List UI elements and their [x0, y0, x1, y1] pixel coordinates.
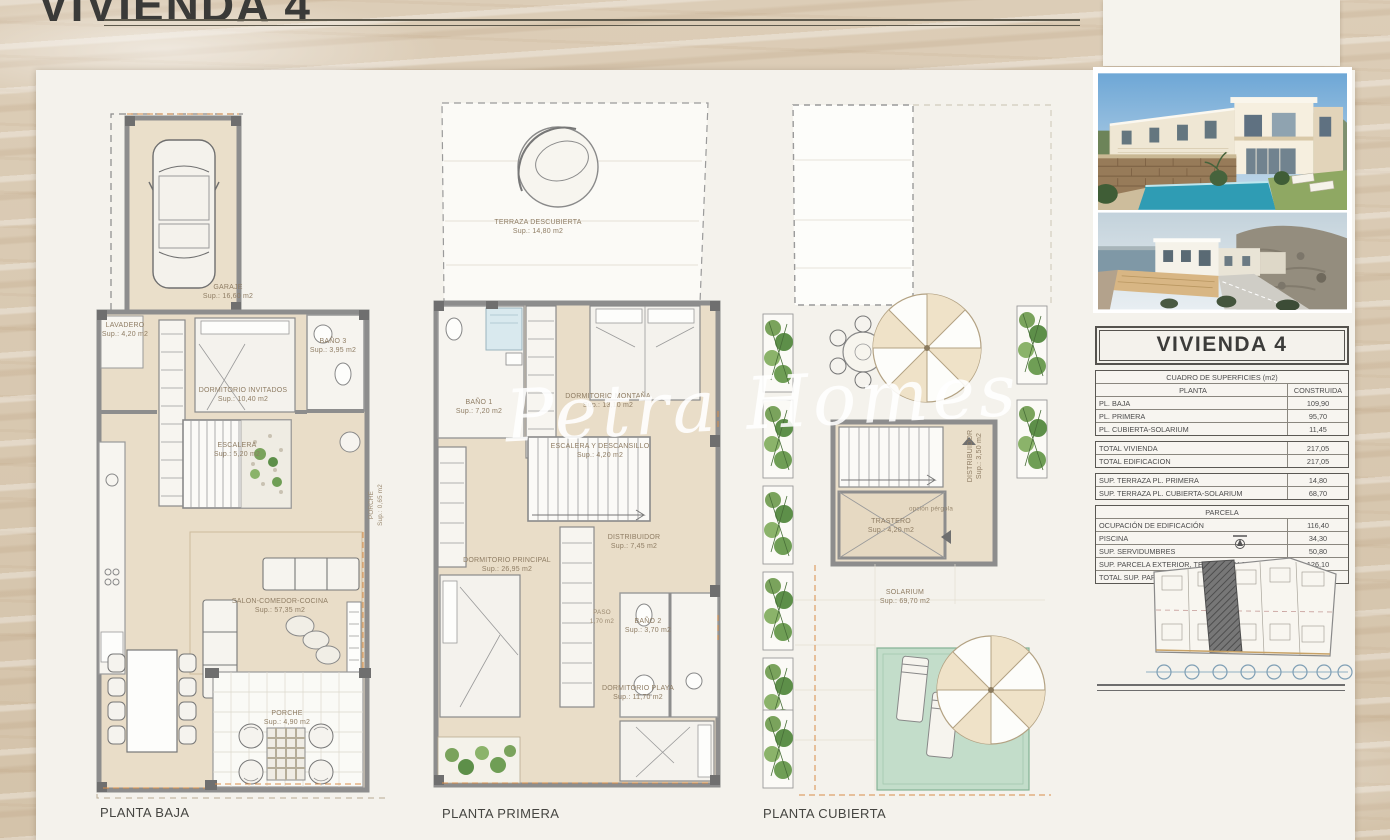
parcela-header: PARCELA	[1096, 506, 1348, 518]
table-row: TOTAL VIVIENDA217,05	[1096, 442, 1348, 454]
table-row: PL. PRIMERA95,70	[1096, 409, 1348, 422]
plants-icon	[438, 737, 520, 783]
plan-planta-cubierta: DISTRIBUIDORSup.: 3,50 m2 TRASTEROSup.: …	[755, 100, 1060, 800]
room-label-solarium: SOLARIUMSup.: 69,70 m2	[880, 588, 930, 606]
page-title: VIVIENDA 4	[38, 0, 312, 32]
room-label-escalera: ESCALERASup.: 5,20 m2	[214, 441, 260, 459]
table-header: CUADRO DE SUPERFICIES (m2)	[1096, 371, 1348, 383]
room-label-dormitorio-montana: DORMITORIO MONTAÑASup.: 13,10 m2	[565, 392, 650, 410]
table-title: VIVIENDA 4	[1099, 330, 1345, 361]
wardrobe-icon	[159, 320, 185, 506]
umbrella-icon	[873, 294, 981, 402]
room-label-garaje: GARAJESup.: 16,60 m2	[203, 283, 253, 301]
woven-table-icon	[267, 728, 305, 780]
table-row: PL. BAJA109,90	[1096, 396, 1348, 409]
room-label-salon: SALON-COMEDOR-COCINASup.: 57,35 m2	[232, 597, 328, 615]
table-row: PL. CUBIERTA-SOLARIUM11,45	[1096, 422, 1348, 435]
title-divider	[104, 19, 1080, 26]
room-label-dormitorio-principal: DORMITORIO PRINCIPALSup.: 26,95 m2	[463, 556, 551, 574]
double-bed-icon	[590, 306, 700, 400]
kitchen-icon	[99, 442, 125, 674]
caption-planta-cubierta: PLANTA CUBIERTA	[763, 806, 886, 821]
site-plan-divider	[1097, 684, 1345, 691]
col-construida: CONSTRUIDA	[1288, 384, 1348, 396]
table-row: OCUPACIÓN DE EDIFICACIÓN116,40	[1096, 518, 1348, 531]
table-terrazas: SUP. TERRAZA PL. PRIMERA14,80 SUP. TERRA…	[1095, 473, 1349, 500]
table-row: TOTAL EDIFICACION217,05	[1096, 454, 1348, 467]
photo-seaside-villas	[1093, 210, 1352, 313]
table-totales: TOTAL VIVIENDA217,05 TOTAL EDIFICACION21…	[1095, 441, 1349, 468]
room-label-distribuidor-cubierta: DISTRIBUIDORSup.: 3,50 m2	[966, 430, 984, 483]
room-label-trastero: TRASTEROSup.: 4,20 m2	[868, 517, 914, 535]
plan-planta-baja: GARAJESup.: 16,60 m2 LAVADEROSup.: 4,20 …	[95, 112, 395, 802]
table-title-box: VIVIENDA 4	[1095, 326, 1349, 365]
room-label-paso: PASO1,70 m2	[590, 608, 614, 626]
table-row: SUP. TERRAZA PL. CUBIERTA-SOLARIUM68,70	[1096, 486, 1348, 499]
caption-planta-baja: PLANTA BAJA	[100, 805, 189, 820]
room-label-opcion-pergola: opción pérgola	[909, 505, 953, 514]
first-floor-body	[434, 301, 720, 785]
north-arrow-icon	[1233, 536, 1247, 549]
photo-render-pool	[1093, 67, 1352, 213]
planters-left	[763, 314, 793, 788]
planters-right	[1017, 306, 1047, 478]
hanging-chair-icon	[518, 127, 598, 207]
col-planta: PLANTA	[1096, 384, 1288, 396]
plan-planta-primera: TERRAZA DESCUBIERTASup.: 14,80 m2 BAÑO 1…	[430, 95, 725, 795]
room-label-porche-lateral: PORCHESup.: 0,65 m2	[367, 484, 385, 526]
room-label-porche: PORCHESup.: 4,90 m2	[264, 709, 310, 727]
brochure-page: VIVIENDA 4	[0, 0, 1390, 840]
caption-planta-primera: PLANTA PRIMERA	[442, 806, 559, 821]
car-icon	[149, 140, 219, 288]
roof-terrace-outline	[793, 105, 913, 305]
room-label-escalera-descansillo: ESCALERA Y DESCANSILLOSup.: 4,20 m2	[551, 442, 650, 460]
bed-icon	[440, 575, 520, 717]
room-label-bano1: BAÑO 1Sup.: 7,20 m2	[456, 398, 502, 416]
bed-icon	[620, 721, 714, 781]
top-right-sheet	[1103, 0, 1340, 66]
planta-cubierta-drawing	[755, 100, 1060, 800]
table-row: SUP. TERRAZA PL. PRIMERA14,80	[1096, 474, 1348, 486]
room-label-bano2: BAÑO 2Sup.: 3,70 m2	[625, 617, 671, 635]
patio-plants-icon	[241, 420, 291, 508]
room-label-terraza: TERRAZA DESCUBIERTASup.: 14,80 m2	[494, 218, 581, 236]
umbrella-icon	[937, 636, 1045, 744]
room-label-distribuidor: DISTRIBUIDORSup.: 7,45 m2	[608, 533, 661, 551]
site-plan	[1140, 532, 1355, 695]
room-label-dormitorio-playa: DORMITORIO PLAYASup.: 11,70 m2	[602, 684, 674, 702]
room-label-lavadero: LAVADEROSup.: 4,20 m2	[102, 321, 148, 339]
terraza-descubierta	[442, 103, 708, 303]
room-label-bano3: BAÑO 3Sup.: 3,95 m2	[310, 337, 356, 355]
porch	[213, 672, 363, 787]
room-label-dormitorio-invitados: DORMITORIO INVITADOSSup.: 10,40 m2	[199, 386, 288, 404]
table-superficies: CUADRO DE SUPERFICIES (m2) PLANTA CONSTR…	[1095, 370, 1349, 436]
